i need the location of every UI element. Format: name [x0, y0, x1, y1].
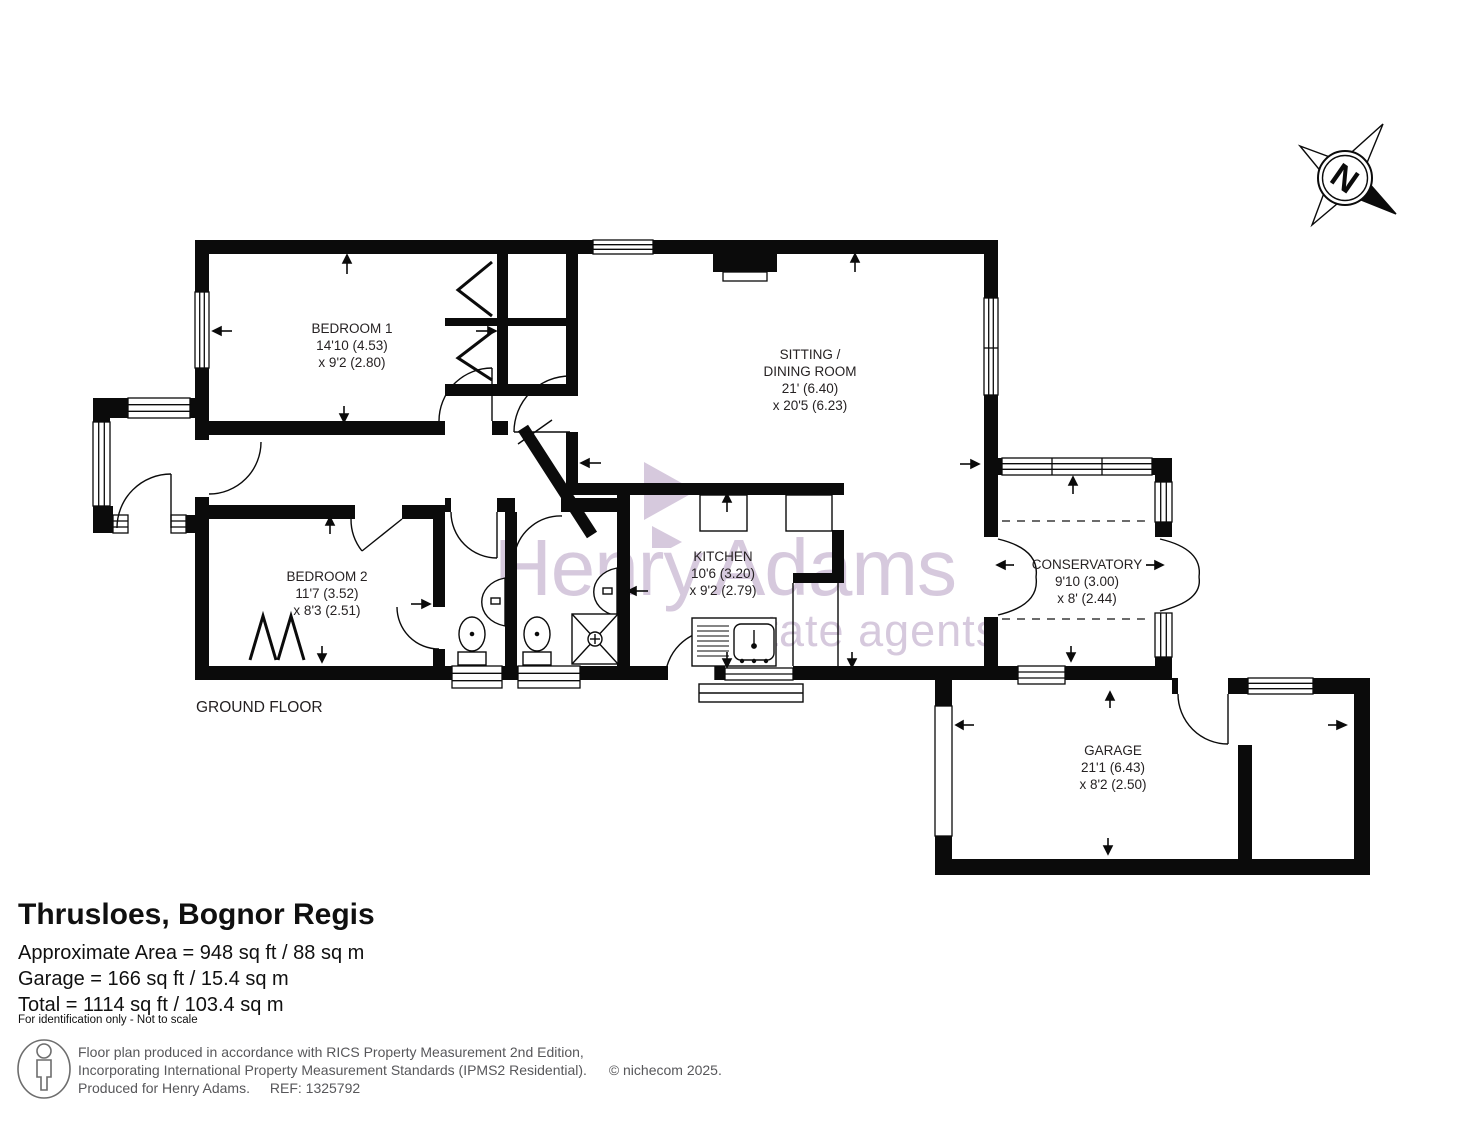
room-dim: x 8' (2.44): [1032, 590, 1143, 607]
room-name: KITCHEN: [689, 548, 756, 565]
room-name: DINING ROOM: [764, 363, 857, 380]
room-label-kitchen: KITCHEN 10'6 (3.20) x 9'2 (2.79): [689, 548, 756, 599]
room-dim: x 8'2 (2.50): [1079, 776, 1146, 793]
room-dim: 14'10 (4.53): [311, 337, 392, 354]
reference-number: REF: 1325792: [270, 1080, 360, 1096]
chamfer-wall: [523, 428, 592, 535]
identification-note: For identification only - Not to scale: [18, 1014, 198, 1026]
room-dim: x 20'5 (6.23): [764, 397, 857, 414]
floorplan-page: Henry Adams estate agents: [0, 0, 1477, 1123]
compass-north-icon: N: [1300, 124, 1396, 225]
room-name: SITTING /: [764, 346, 857, 363]
room-dim: 9'10 (3.00): [1032, 573, 1143, 590]
approximate-area: Approximate Area = 948 sq ft / 88 sq m: [18, 942, 364, 965]
disclaimer-line3-row: Produced for Henry Adams. REF: 1325792: [78, 1080, 360, 1096]
room-dim: x 9'2 (2.79): [689, 582, 756, 599]
copyright: © nichecom 2025.: [609, 1062, 722, 1078]
room-dim: 21'1 (6.43): [1079, 759, 1146, 776]
page-title: Thrusloes, Bognor Regis: [18, 898, 375, 932]
garage-area: Garage = 166 sq ft / 15.4 sq m: [18, 968, 289, 991]
garage-door: [935, 706, 952, 836]
room-label-conservatory: CONSERVATORY 9'10 (3.00) x 8' (2.44): [1032, 556, 1143, 607]
room-dim: 11'7 (3.52): [286, 585, 367, 602]
bathroom-fixtures: [458, 568, 618, 665]
room-dim: x 8'3 (2.51): [286, 602, 367, 619]
disclaimer-line1: Floor plan produced in accordance with R…: [78, 1044, 584, 1060]
room-dim: 21' (6.40): [764, 380, 857, 397]
produced-for: Produced for Henry Adams.: [78, 1080, 250, 1096]
room-label-sitting-dining: SITTING / DINING ROOM 21' (6.40) x 20'5 …: [764, 346, 857, 414]
disclaimer-line2: Incorporating International Property Mea…: [78, 1062, 587, 1078]
person-scale-icon: [18, 1040, 70, 1098]
room-name: GARAGE: [1079, 742, 1146, 759]
room-name: CONSERVATORY: [1032, 556, 1143, 573]
room-name: BEDROOM 1: [311, 320, 392, 337]
floor-label: GROUND FLOOR: [196, 699, 323, 717]
room-label-bedroom1: BEDROOM 1 14'10 (4.53) x 9'2 (2.80): [311, 320, 392, 371]
room-name: BEDROOM 2: [286, 568, 367, 585]
room-label-garage: GARAGE 21'1 (6.43) x 8'2 (2.50): [1079, 742, 1146, 793]
disclaimer-line2-row: Incorporating International Property Mea…: [78, 1062, 722, 1078]
room-dim: x 9'2 (2.80): [311, 354, 392, 371]
room-dim: 10'6 (3.20): [689, 565, 756, 582]
room-label-bedroom2: BEDROOM 2 11'7 (3.52) x 8'3 (2.51): [286, 568, 367, 619]
kitchen-unit: [786, 495, 832, 531]
